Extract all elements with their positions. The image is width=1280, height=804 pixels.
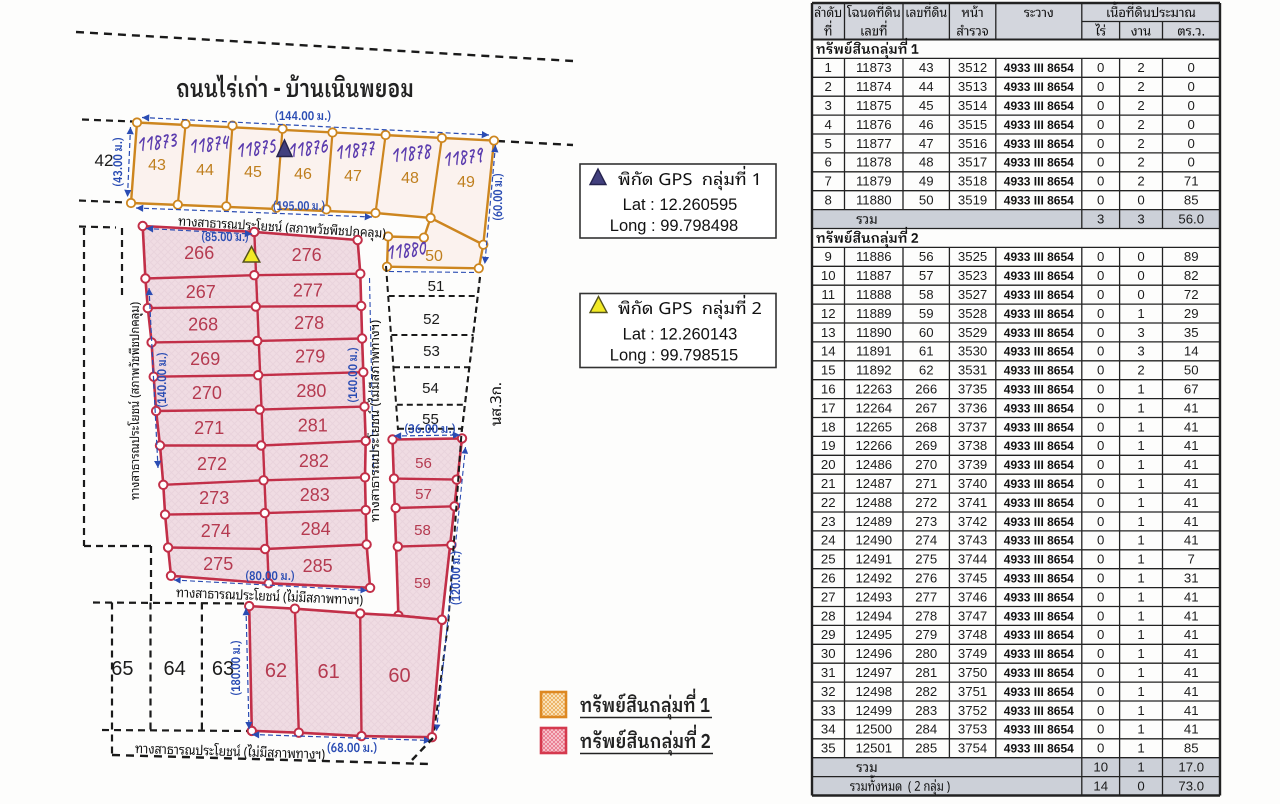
svg-text:0: 0 <box>1097 325 1104 340</box>
svg-text:56: 56 <box>415 455 432 472</box>
svg-text:0: 0 <box>1097 193 1104 208</box>
svg-text:277: 277 <box>293 280 323 300</box>
svg-text:3754: 3754 <box>958 741 987 756</box>
svg-text:281: 281 <box>915 665 937 680</box>
svg-text:85: 85 <box>1184 741 1199 756</box>
svg-text:0: 0 <box>1097 382 1104 397</box>
svg-text:41: 41 <box>1184 646 1199 661</box>
svg-text:89: 89 <box>1184 249 1199 264</box>
svg-text:29: 29 <box>1184 306 1199 321</box>
svg-text:2: 2 <box>1137 98 1144 113</box>
svg-text:278: 278 <box>294 313 324 333</box>
svg-text:41: 41 <box>1184 419 1199 434</box>
svg-text:1: 1 <box>1137 760 1144 775</box>
svg-text:276: 276 <box>915 571 937 586</box>
svg-text:266: 266 <box>915 382 937 397</box>
svg-text:21: 21 <box>821 476 836 491</box>
svg-text:285: 285 <box>915 741 937 756</box>
svg-text:0: 0 <box>1097 419 1104 434</box>
svg-text:44: 44 <box>919 79 934 94</box>
svg-text:11889: 11889 <box>856 306 892 321</box>
svg-text:4: 4 <box>825 117 832 132</box>
svg-text:3753: 3753 <box>958 722 987 737</box>
svg-text:273: 273 <box>199 488 229 508</box>
svg-text:274: 274 <box>915 533 937 548</box>
svg-text:57: 57 <box>415 486 432 503</box>
svg-text:12486: 12486 <box>855 457 892 472</box>
svg-text:41: 41 <box>1184 533 1199 548</box>
svg-text:3: 3 <box>825 98 832 113</box>
svg-text:62: 62 <box>919 363 934 378</box>
svg-text:4933 III 8654: 4933 III 8654 <box>1004 704 1074 718</box>
svg-text:6: 6 <box>825 155 832 170</box>
svg-text:41: 41 <box>1184 514 1199 529</box>
svg-text:8: 8 <box>825 193 832 208</box>
svg-text:3747: 3747 <box>958 608 987 623</box>
svg-text:0: 0 <box>1097 98 1104 113</box>
svg-text:4933 III 8654: 4933 III 8654 <box>1004 250 1074 264</box>
svg-text:281: 281 <box>298 416 328 436</box>
svg-text:272: 272 <box>197 454 227 474</box>
svg-text:283: 283 <box>915 703 937 718</box>
svg-text:Long : 99.798515: Long : 99.798515 <box>610 347 738 365</box>
svg-text:41: 41 <box>1184 684 1199 699</box>
svg-text:11873: 11873 <box>856 60 892 75</box>
svg-text:3516: 3516 <box>958 136 987 151</box>
svg-text:41: 41 <box>1184 665 1199 680</box>
svg-text:0: 0 <box>1188 155 1195 170</box>
svg-text:49: 49 <box>919 174 934 189</box>
svg-text:Long : 99.798498: Long : 99.798498 <box>610 217 738 235</box>
svg-text:1: 1 <box>1137 552 1144 567</box>
svg-text:12492: 12492 <box>855 571 892 586</box>
svg-text:1: 1 <box>1137 608 1144 623</box>
svg-text:1: 1 <box>1137 741 1144 756</box>
svg-text:14: 14 <box>1184 344 1199 359</box>
svg-text:50: 50 <box>919 193 934 208</box>
svg-text:3748: 3748 <box>958 627 987 642</box>
svg-text:Lat : 12.260595: Lat : 12.260595 <box>623 196 738 214</box>
svg-text:41: 41 <box>1184 495 1199 510</box>
svg-text:267: 267 <box>186 282 216 302</box>
svg-text:58: 58 <box>414 522 431 539</box>
svg-text:12500: 12500 <box>855 722 892 737</box>
svg-text:1: 1 <box>1137 722 1144 737</box>
svg-text:3: 3 <box>1097 211 1104 226</box>
svg-text:12488: 12488 <box>855 495 892 510</box>
svg-text:4933 III 8654: 4933 III 8654 <box>1004 364 1074 378</box>
svg-text:5: 5 <box>825 136 832 151</box>
svg-text:1: 1 <box>1137 684 1144 699</box>
svg-text:1: 1 <box>1137 476 1144 491</box>
svg-text:22: 22 <box>821 495 836 510</box>
svg-text:4933 III 8654: 4933 III 8654 <box>1004 496 1074 510</box>
svg-text:64: 64 <box>163 658 185 680</box>
svg-text:0: 0 <box>1097 363 1104 378</box>
svg-text:49: 49 <box>457 174 475 191</box>
svg-text:12263: 12263 <box>855 382 892 397</box>
svg-text:3513: 3513 <box>958 79 987 94</box>
svg-text:272: 272 <box>915 495 937 510</box>
svg-text:45: 45 <box>919 98 934 113</box>
svg-text:268: 268 <box>188 315 218 335</box>
svg-text:3737: 3737 <box>958 419 987 434</box>
svg-text:12: 12 <box>821 306 836 321</box>
svg-text:12264: 12264 <box>855 400 892 415</box>
svg-text:12495: 12495 <box>855 627 892 642</box>
svg-text:0: 0 <box>1097 174 1104 189</box>
svg-text:12497: 12497 <box>855 665 892 680</box>
svg-text:11878: 11878 <box>856 155 892 170</box>
svg-text:56.0: 56.0 <box>1178 211 1204 226</box>
svg-text:45: 45 <box>244 164 262 181</box>
svg-text:3742: 3742 <box>958 514 987 529</box>
svg-text:10: 10 <box>1093 760 1108 775</box>
svg-text:0: 0 <box>1188 79 1195 94</box>
svg-text:15: 15 <box>821 363 836 378</box>
svg-text:85: 85 <box>1184 193 1199 208</box>
svg-text:4933 III 8654: 4933 III 8654 <box>1004 534 1074 548</box>
svg-text:47: 47 <box>344 168 362 185</box>
svg-text:1: 1 <box>1137 589 1144 604</box>
svg-text:3740: 3740 <box>958 476 987 491</box>
svg-text:63: 63 <box>212 658 234 680</box>
svg-text:61: 61 <box>317 661 339 683</box>
svg-text:4933 III 8654: 4933 III 8654 <box>1004 572 1074 586</box>
svg-text:3525: 3525 <box>958 249 987 264</box>
svg-text:0: 0 <box>1097 476 1104 491</box>
svg-text:20: 20 <box>821 457 836 472</box>
svg-text:2: 2 <box>1137 79 1144 94</box>
svg-text:267: 267 <box>915 400 937 415</box>
svg-text:3746: 3746 <box>958 589 987 604</box>
svg-text:0: 0 <box>1097 268 1104 283</box>
svg-text:282: 282 <box>915 684 937 699</box>
svg-text:0: 0 <box>1097 722 1104 737</box>
svg-text:41: 41 <box>1184 627 1199 642</box>
svg-text:1: 1 <box>1137 400 1144 415</box>
svg-text:0: 0 <box>1097 684 1104 699</box>
svg-text:16: 16 <box>821 382 836 397</box>
svg-text:0: 0 <box>1097 703 1104 718</box>
svg-text:271: 271 <box>915 476 937 491</box>
svg-text:1: 1 <box>1137 306 1144 321</box>
svg-text:266: 266 <box>184 243 214 263</box>
svg-text:12501: 12501 <box>855 741 892 756</box>
svg-text:1: 1 <box>1137 571 1144 586</box>
svg-text:2: 2 <box>825 79 832 94</box>
svg-text:0: 0 <box>1097 249 1104 264</box>
svg-text:270: 270 <box>915 457 937 472</box>
svg-text:4933 III 8654: 4933 III 8654 <box>1004 458 1074 472</box>
svg-text:73.0: 73.0 <box>1178 778 1204 793</box>
svg-text:11888: 11888 <box>856 287 892 302</box>
svg-text:3512: 3512 <box>958 60 987 75</box>
svg-text:10: 10 <box>821 268 836 283</box>
svg-text:0: 0 <box>1097 552 1104 567</box>
svg-text:279: 279 <box>915 627 937 642</box>
svg-text:4933 III 8654: 4933 III 8654 <box>1004 80 1074 94</box>
svg-text:3527: 3527 <box>958 287 987 302</box>
svg-text:3745: 3745 <box>958 571 987 586</box>
svg-text:4933 III 8654: 4933 III 8654 <box>1004 666 1074 680</box>
svg-text:284: 284 <box>301 519 331 539</box>
svg-text:41: 41 <box>1184 438 1199 453</box>
svg-text:275: 275 <box>203 554 233 574</box>
svg-text:0: 0 <box>1097 665 1104 680</box>
svg-text:271: 271 <box>194 418 224 438</box>
svg-text:1: 1 <box>1137 514 1144 529</box>
svg-text:273: 273 <box>915 514 937 529</box>
svg-text:0: 0 <box>1137 778 1144 793</box>
svg-text:67: 67 <box>1184 382 1199 397</box>
svg-text:4933 III 8654: 4933 III 8654 <box>1004 156 1074 170</box>
svg-text:3752: 3752 <box>958 703 987 718</box>
svg-text:48: 48 <box>919 155 934 170</box>
svg-text:57: 57 <box>919 268 934 283</box>
svg-text:4933 III 8654: 4933 III 8654 <box>1004 723 1074 737</box>
svg-text:3528: 3528 <box>958 306 987 321</box>
svg-text:61: 61 <box>919 344 934 359</box>
svg-text:4933 III 8654: 4933 III 8654 <box>1004 61 1074 75</box>
svg-text:35: 35 <box>1184 325 1199 340</box>
svg-text:276: 276 <box>292 245 322 265</box>
svg-text:0: 0 <box>1097 495 1104 510</box>
svg-text:0: 0 <box>1188 136 1195 151</box>
svg-text:4933 III 8654: 4933 III 8654 <box>1004 345 1074 359</box>
svg-text:4933 III 8654: 4933 III 8654 <box>1004 194 1074 208</box>
svg-text:44: 44 <box>196 162 214 179</box>
svg-text:33: 33 <box>821 703 836 718</box>
svg-text:59: 59 <box>919 306 934 321</box>
svg-text:0: 0 <box>1137 268 1144 283</box>
svg-text:11891: 11891 <box>856 344 892 359</box>
svg-text:4933 III 8654: 4933 III 8654 <box>1004 515 1074 529</box>
svg-text:9: 9 <box>825 249 832 264</box>
svg-text:3: 3 <box>1137 325 1144 340</box>
svg-text:72: 72 <box>1184 287 1199 302</box>
svg-text:4933 III 8654: 4933 III 8654 <box>1004 420 1074 434</box>
svg-text:41: 41 <box>1184 608 1199 623</box>
svg-text:268: 268 <box>915 419 937 434</box>
svg-text:11892: 11892 <box>856 363 892 378</box>
svg-text:12266: 12266 <box>855 438 892 453</box>
svg-text:11879: 11879 <box>856 174 892 189</box>
svg-text:1: 1 <box>1137 703 1144 718</box>
svg-text:31: 31 <box>1184 571 1199 586</box>
svg-text:284: 284 <box>915 722 937 737</box>
svg-text:82: 82 <box>1184 268 1199 283</box>
svg-text:2: 2 <box>1137 117 1144 132</box>
svg-text:3515: 3515 <box>958 117 987 132</box>
svg-text:4933 III 8654: 4933 III 8654 <box>1004 118 1074 132</box>
svg-text:0: 0 <box>1097 60 1104 75</box>
svg-text:0: 0 <box>1097 287 1104 302</box>
svg-text:41: 41 <box>1184 703 1199 718</box>
svg-text:3517: 3517 <box>958 155 987 170</box>
svg-text:12496: 12496 <box>855 646 892 661</box>
svg-text:0: 0 <box>1137 193 1144 208</box>
svg-text:0: 0 <box>1097 571 1104 586</box>
svg-text:11887: 11887 <box>856 268 892 283</box>
svg-text:4933 III 8654: 4933 III 8654 <box>1004 288 1074 302</box>
svg-text:3744: 3744 <box>958 552 987 567</box>
svg-text:47: 47 <box>919 136 934 151</box>
svg-text:27: 27 <box>821 589 836 604</box>
svg-text:46: 46 <box>919 117 934 132</box>
svg-text:1: 1 <box>1137 627 1144 642</box>
svg-text:3523: 3523 <box>958 268 987 283</box>
svg-text:29: 29 <box>821 627 836 642</box>
svg-text:58: 58 <box>919 287 934 302</box>
svg-text:277: 277 <box>915 589 937 604</box>
svg-text:60: 60 <box>388 665 410 687</box>
svg-text:4933 III 8654: 4933 III 8654 <box>1004 685 1074 699</box>
svg-text:0: 0 <box>1097 155 1104 170</box>
svg-text:60: 60 <box>919 325 934 340</box>
svg-text:282: 282 <box>299 451 329 471</box>
svg-text:54: 54 <box>422 380 439 397</box>
svg-text:3750: 3750 <box>958 665 987 680</box>
svg-text:32: 32 <box>821 684 836 699</box>
svg-text:4933 III 8654: 4933 III 8654 <box>1004 439 1074 453</box>
svg-text:62: 62 <box>265 660 287 682</box>
svg-text:1: 1 <box>1137 495 1144 510</box>
svg-text:41: 41 <box>1184 589 1199 604</box>
svg-text:4933 III 8654: 4933 III 8654 <box>1004 401 1074 415</box>
svg-text:56: 56 <box>919 249 934 264</box>
svg-text:2: 2 <box>1137 363 1144 378</box>
svg-text:4933 III 8654: 4933 III 8654 <box>1004 590 1074 604</box>
svg-text:41: 41 <box>1184 722 1199 737</box>
svg-text:7: 7 <box>1188 552 1195 567</box>
svg-text:274: 274 <box>201 521 231 541</box>
svg-text:279: 279 <box>295 347 325 367</box>
svg-text:35: 35 <box>821 741 836 756</box>
svg-text:280: 280 <box>915 646 937 661</box>
svg-text:0: 0 <box>1097 514 1104 529</box>
svg-text:3531: 3531 <box>958 363 987 378</box>
svg-text:50: 50 <box>425 248 443 265</box>
svg-text:1: 1 <box>1137 646 1144 661</box>
svg-text:0: 0 <box>1097 136 1104 151</box>
svg-text:11880: 11880 <box>856 193 892 208</box>
svg-text:270: 270 <box>192 383 222 403</box>
svg-text:12491: 12491 <box>855 552 892 567</box>
svg-text:11: 11 <box>821 287 835 302</box>
svg-text:0: 0 <box>1097 608 1104 623</box>
svg-text:4933 III 8654: 4933 III 8654 <box>1004 307 1074 321</box>
svg-text:4933 III 8654: 4933 III 8654 <box>1004 742 1074 756</box>
svg-text:71: 71 <box>1184 174 1199 189</box>
svg-text:3738: 3738 <box>958 438 987 453</box>
svg-text:31: 31 <box>821 665 836 680</box>
svg-text:285: 285 <box>303 556 333 576</box>
svg-text:0: 0 <box>1097 589 1104 604</box>
svg-text:7: 7 <box>825 174 832 189</box>
svg-text:3743: 3743 <box>958 533 987 548</box>
svg-text:4933 III 8654: 4933 III 8654 <box>1004 137 1074 151</box>
svg-text:11875: 11875 <box>856 98 892 113</box>
svg-text:41: 41 <box>1184 457 1199 472</box>
svg-text:0: 0 <box>1097 117 1104 132</box>
svg-text:26: 26 <box>821 571 836 586</box>
svg-text:0: 0 <box>1097 306 1104 321</box>
svg-text:3736: 3736 <box>958 400 987 415</box>
svg-text:4933 III 8654: 4933 III 8654 <box>1004 647 1074 661</box>
svg-text:25: 25 <box>821 552 836 567</box>
svg-text:2: 2 <box>1137 174 1144 189</box>
svg-text:0: 0 <box>1188 98 1195 113</box>
svg-text:0: 0 <box>1097 344 1104 359</box>
svg-text:65: 65 <box>111 658 133 680</box>
svg-text:1: 1 <box>1137 457 1144 472</box>
svg-text:0: 0 <box>1097 79 1104 94</box>
svg-text:3: 3 <box>1137 211 1144 226</box>
svg-text:0: 0 <box>1097 533 1104 548</box>
svg-text:43: 43 <box>919 60 934 75</box>
svg-text:53: 53 <box>423 343 440 360</box>
svg-text:12498: 12498 <box>855 684 892 699</box>
svg-text:11890: 11890 <box>856 325 892 340</box>
svg-text:269: 269 <box>915 438 937 453</box>
svg-text:50: 50 <box>1184 363 1199 378</box>
svg-text:4933 III 8654: 4933 III 8654 <box>1004 269 1074 283</box>
svg-text:1: 1 <box>1137 438 1144 453</box>
svg-text:4933 III 8654: 4933 III 8654 <box>1004 383 1074 397</box>
svg-text:3530: 3530 <box>958 344 987 359</box>
svg-text:4933 III 8654: 4933 III 8654 <box>1004 628 1074 642</box>
svg-text:0: 0 <box>1137 287 1144 302</box>
svg-text:3514: 3514 <box>958 98 987 113</box>
svg-text:3739: 3739 <box>958 457 987 472</box>
svg-text:46: 46 <box>294 166 312 183</box>
svg-text:4933 III 8654: 4933 III 8654 <box>1004 175 1074 189</box>
svg-text:11874: 11874 <box>856 79 892 94</box>
svg-text:14: 14 <box>821 344 836 359</box>
svg-text:3: 3 <box>1137 344 1144 359</box>
svg-text:269: 269 <box>190 349 220 369</box>
svg-text:17: 17 <box>821 400 836 415</box>
svg-text:3741: 3741 <box>958 495 987 510</box>
svg-text:4933 III 8654: 4933 III 8654 <box>1004 326 1074 340</box>
svg-text:283: 283 <box>300 485 330 505</box>
svg-text:0: 0 <box>1097 646 1104 661</box>
svg-text:3735: 3735 <box>958 382 987 397</box>
svg-text:1: 1 <box>825 60 832 75</box>
svg-text:3518: 3518 <box>958 174 987 189</box>
svg-text:24: 24 <box>821 533 836 548</box>
svg-text:12499: 12499 <box>855 703 892 718</box>
svg-text:0: 0 <box>1097 741 1104 756</box>
svg-text:41: 41 <box>1184 400 1199 415</box>
svg-text:0: 0 <box>1188 60 1195 75</box>
svg-text:Lat : 12.260143: Lat : 12.260143 <box>623 326 738 344</box>
svg-text:13: 13 <box>821 325 836 340</box>
svg-text:12489: 12489 <box>855 514 892 529</box>
svg-text:12265: 12265 <box>855 419 892 434</box>
svg-text:1: 1 <box>1137 419 1144 434</box>
svg-text:1: 1 <box>1137 665 1144 680</box>
svg-text:11877: 11877 <box>856 136 892 151</box>
svg-text:0: 0 <box>1137 249 1144 264</box>
svg-text:1: 1 <box>1137 533 1144 548</box>
svg-text:28: 28 <box>821 608 836 623</box>
svg-text:41: 41 <box>1184 476 1199 491</box>
svg-text:4933 III 8654: 4933 III 8654 <box>1004 477 1074 491</box>
svg-text:4933 III 8654: 4933 III 8654 <box>1004 553 1074 567</box>
svg-text:11886: 11886 <box>856 249 892 264</box>
